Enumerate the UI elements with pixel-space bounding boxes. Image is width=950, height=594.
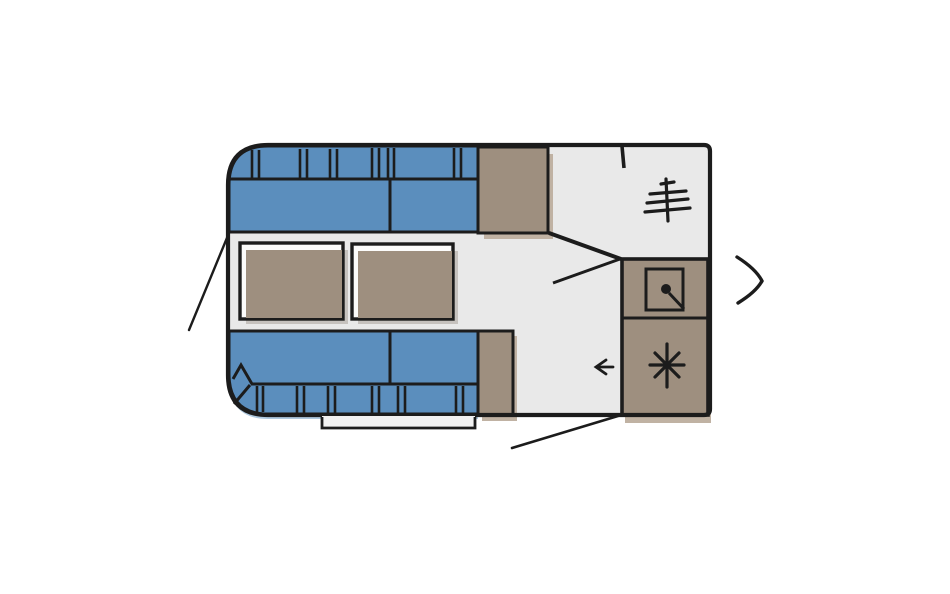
washroom-wall-stub (622, 146, 624, 168)
cabinet-top (478, 147, 548, 233)
dinette-bench-top (229, 146, 478, 232)
dinette-bench-bottom (229, 331, 478, 414)
caravan-floorplan (0, 0, 950, 594)
dinette-table-right (352, 244, 458, 324)
table-top (358, 251, 452, 318)
pointer-line-entry-door (512, 416, 618, 448)
kitchen-unit (622, 259, 708, 415)
pointer-line-front-dinette (189, 233, 229, 330)
chevron-right-icon[interactable] (737, 257, 762, 303)
entry-step (322, 416, 475, 428)
floorplan-stage (0, 0, 950, 594)
dinette-table-left (240, 243, 348, 324)
cabinet-bottom (478, 331, 513, 415)
table-top (246, 250, 342, 318)
